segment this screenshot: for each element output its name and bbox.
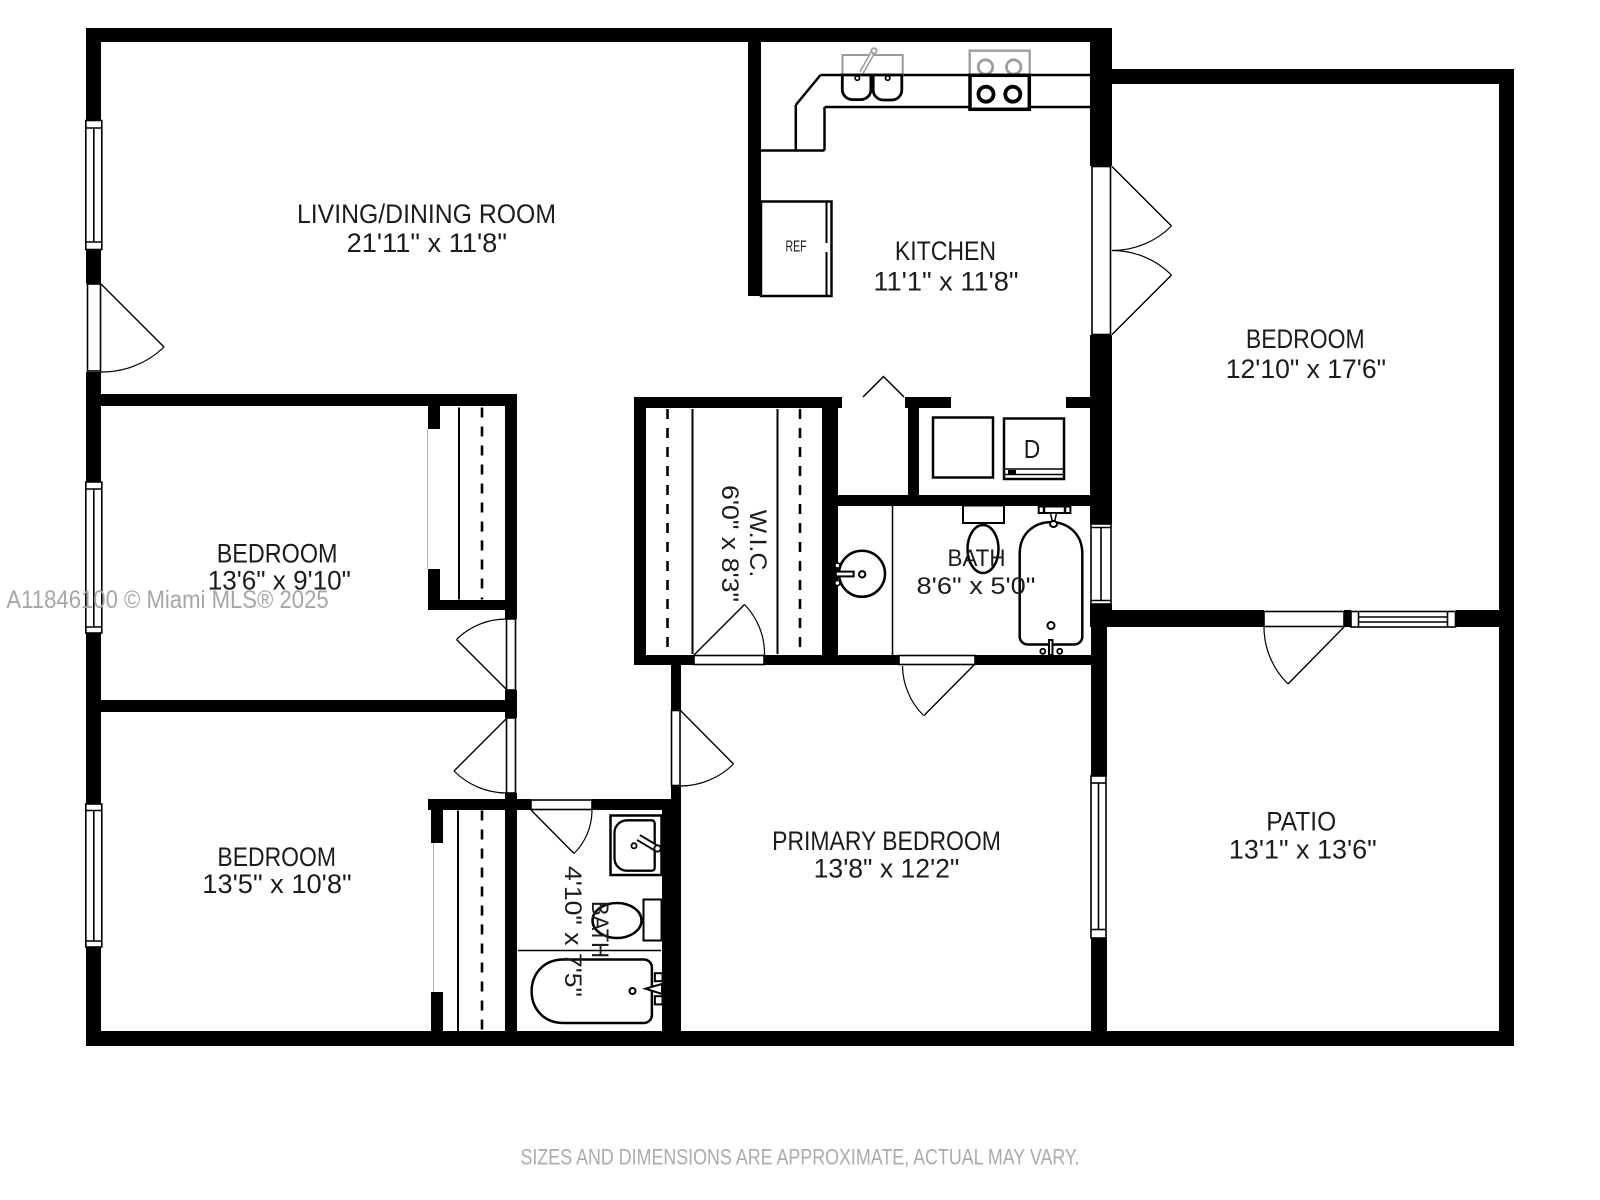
svg-text:BEDROOM: BEDROOM	[217, 842, 336, 872]
svg-text:KITCHEN: KITCHEN	[895, 236, 996, 266]
svg-text:21'11" x 11'8": 21'11" x 11'8"	[347, 228, 507, 258]
svg-text:12'10" x 17'6": 12'10" x 17'6"	[1226, 354, 1386, 384]
svg-text:BATH: BATH	[586, 901, 613, 958]
svg-text:SIZES AND DIMENSIONS ARE APPRO: SIZES AND DIMENSIONS ARE APPROXIMATE, AC…	[521, 1145, 1080, 1170]
svg-text:D: D	[1024, 434, 1041, 464]
svg-text:W.I.C.: W.I.C.	[744, 510, 771, 578]
svg-text:8'6" x 5'0": 8'6" x 5'0"	[917, 573, 1036, 600]
svg-text:11'1" x 11'8": 11'1" x 11'8"	[873, 267, 1018, 297]
svg-text:13'1" x 13'6": 13'1" x 13'6"	[1229, 834, 1377, 864]
svg-text:PATIO: PATIO	[1266, 807, 1336, 837]
svg-text:REF: REF	[786, 239, 807, 256]
svg-text:BATH: BATH	[948, 545, 1006, 572]
svg-text:6'0" x 8'3": 6'0" x 8'3"	[716, 485, 743, 602]
svg-text:13'8" x 12'2": 13'8" x 12'2"	[814, 854, 960, 884]
svg-text:BEDROOM: BEDROOM	[1246, 324, 1365, 354]
svg-text:PRIMARY BEDROOM: PRIMARY BEDROOM	[772, 826, 1001, 856]
svg-text:A11846100 © Miami MLS® 2025: A11846100 © Miami MLS® 2025	[6, 586, 328, 614]
svg-text:LIVING/DINING ROOM: LIVING/DINING ROOM	[297, 199, 556, 229]
svg-text:BEDROOM: BEDROOM	[217, 539, 338, 569]
svg-text:4'10" x 7'5": 4'10" x 7'5"	[559, 866, 586, 997]
svg-text:13'5" x 10'8": 13'5" x 10'8"	[202, 869, 351, 899]
